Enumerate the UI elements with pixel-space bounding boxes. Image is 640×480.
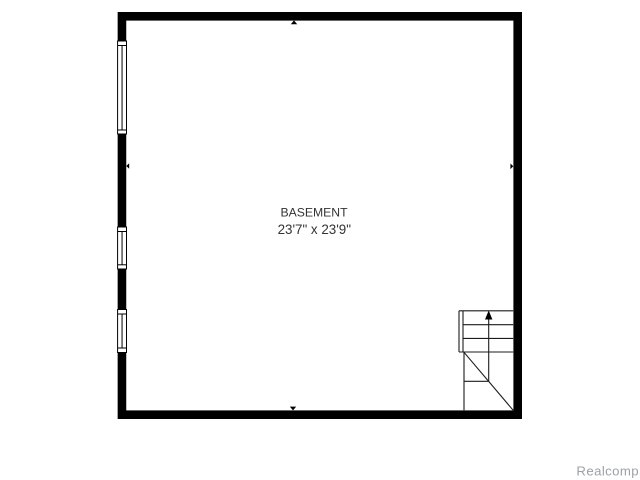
svg-text:23'7" x 23'9": 23'7" x 23'9": [278, 222, 352, 237]
svg-text:Realcomp: Realcomp: [576, 463, 639, 478]
svg-text:BASEMENT: BASEMENT: [280, 206, 348, 220]
